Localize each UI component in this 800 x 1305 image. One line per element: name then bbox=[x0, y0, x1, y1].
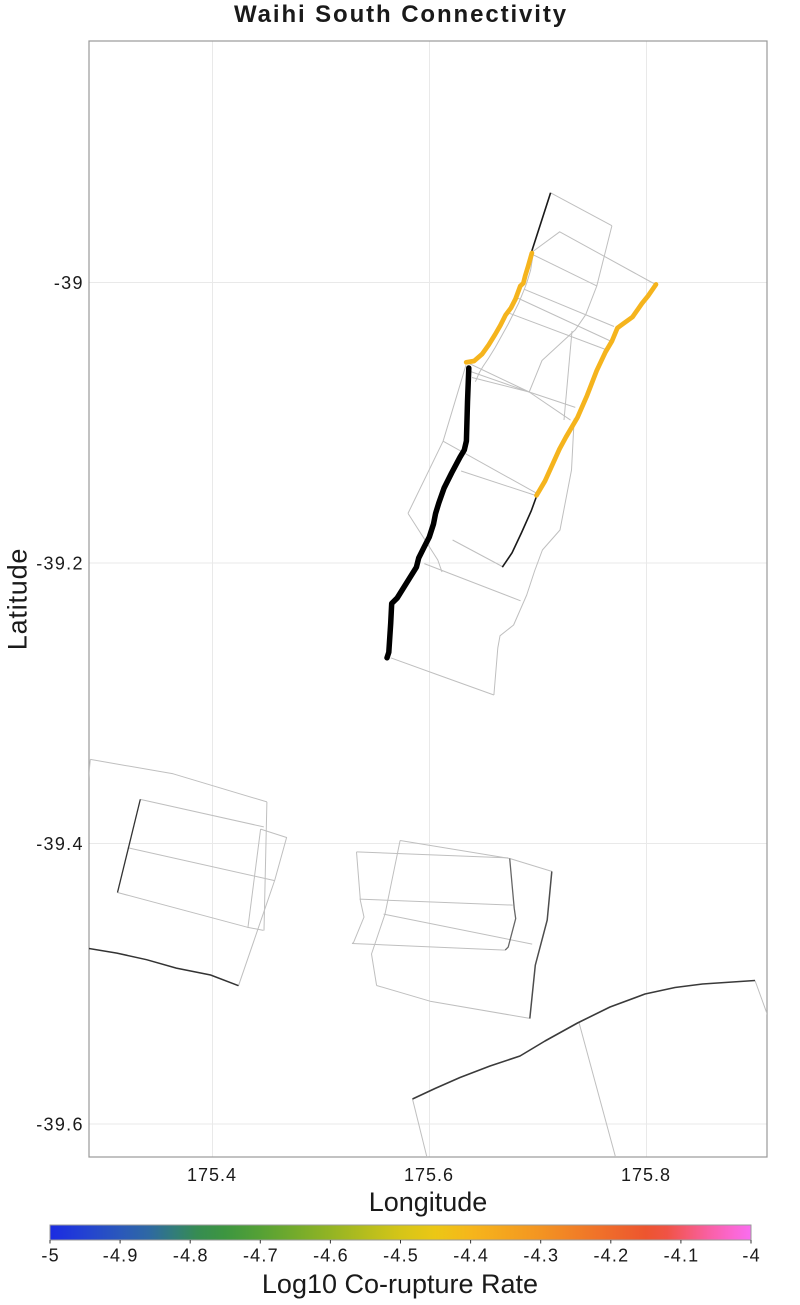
svg-text:Latitude: Latitude bbox=[3, 548, 33, 650]
svg-text:-39.4: -39.4 bbox=[36, 834, 84, 854]
svg-text:-4.2: -4.2 bbox=[593, 1246, 629, 1266]
svg-text:175.8: 175.8 bbox=[621, 1165, 671, 1185]
svg-text:-4: -4 bbox=[742, 1246, 760, 1266]
svg-text:-39: -39 bbox=[54, 273, 84, 293]
svg-text:-5: -5 bbox=[41, 1246, 59, 1266]
svg-text:-4.7: -4.7 bbox=[243, 1246, 279, 1266]
svg-text:-4.5: -4.5 bbox=[383, 1246, 419, 1266]
svg-text:-4.4: -4.4 bbox=[453, 1246, 489, 1266]
svg-text:-4.9: -4.9 bbox=[103, 1246, 139, 1266]
svg-text:-4.3: -4.3 bbox=[523, 1246, 559, 1266]
svg-text:Log10 Co-rupture Rate: Log10 Co-rupture Rate bbox=[262, 1269, 538, 1299]
svg-text:175.6: 175.6 bbox=[404, 1165, 454, 1185]
svg-text:Waihi South Connectivity: Waihi South Connectivity bbox=[234, 1, 568, 28]
svg-text:-39.6: -39.6 bbox=[36, 1115, 84, 1135]
svg-text:-39.2: -39.2 bbox=[36, 554, 84, 574]
svg-text:Longitude: Longitude bbox=[369, 1187, 488, 1217]
svg-text:175.4: 175.4 bbox=[187, 1165, 237, 1185]
svg-text:-4.8: -4.8 bbox=[173, 1246, 209, 1266]
svg-text:-4.6: -4.6 bbox=[313, 1246, 349, 1266]
svg-text:-4.1: -4.1 bbox=[664, 1246, 700, 1266]
